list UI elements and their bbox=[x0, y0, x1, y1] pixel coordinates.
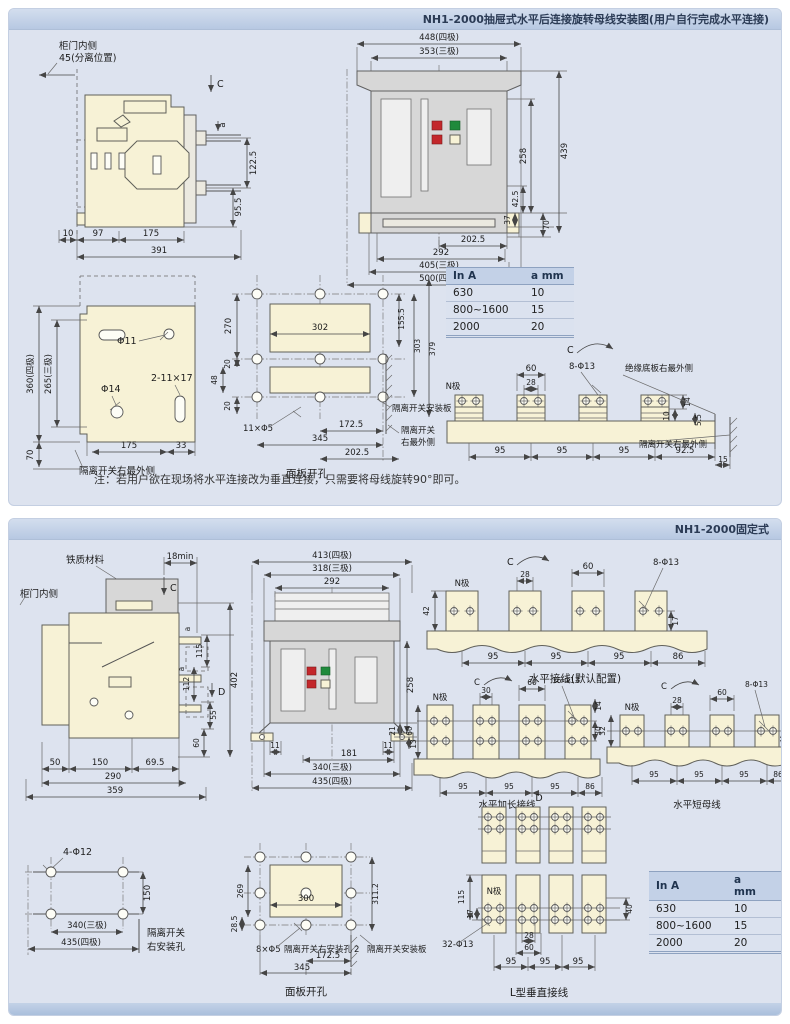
dim-label: 60 bbox=[526, 364, 537, 374]
panel1-titlebar: NH1-2000抽屉式水平后连接旋转母线安装图(用户自行完成水平连接) bbox=[9, 9, 781, 30]
hole-callout: Φ11 bbox=[117, 336, 137, 347]
top-flange bbox=[264, 621, 400, 641]
dim-label: 353(三极) bbox=[419, 46, 459, 57]
drawer-front-view: 448(四极) 353(三极) 258 439 42.5 37 70 202.5… bbox=[319, 31, 579, 289]
dim-label: 50 bbox=[50, 758, 61, 768]
table-row: 800~160015 bbox=[446, 302, 574, 319]
table-row: 800~16001517 bbox=[649, 918, 782, 935]
dim-label: 175 bbox=[121, 441, 137, 451]
dim-label: 340(三极) bbox=[67, 920, 107, 931]
drawer-side-view: 柜门内侧 45(分离位置) C a 122.5 95.5 10 bbox=[19, 35, 319, 267]
hole-callout: 4-Φ12 bbox=[63, 847, 92, 858]
neutral-pole-label: N极 bbox=[487, 886, 502, 897]
dim-label: 270 bbox=[224, 318, 234, 334]
dim-label: 269 bbox=[236, 884, 245, 899]
dim-label: 300 bbox=[298, 894, 314, 904]
indicator-red bbox=[432, 135, 442, 144]
hole-callout: 8-Φ13 bbox=[653, 558, 679, 568]
fixed-side-view: 铁质材料 柜门内侧 C 18min a a D 115 112 55 bbox=[14, 547, 244, 805]
dim-label: 32 bbox=[598, 726, 607, 736]
busbar-stacks bbox=[427, 705, 591, 759]
dim-label: 20 bbox=[223, 401, 232, 411]
upper-bars bbox=[478, 807, 611, 863]
busbar-l-vertical-view: D N极 115 17 32-Φ13 40 bbox=[434, 791, 674, 1016]
indicator-red bbox=[307, 667, 316, 675]
arc-chamber bbox=[275, 593, 389, 621]
label-door-inner: 柜门内侧 bbox=[20, 588, 58, 600]
table-row: 63010 bbox=[446, 285, 574, 302]
indicator-green bbox=[450, 121, 460, 130]
dim-label: 172.5 bbox=[339, 420, 363, 430]
dim-label: 42 bbox=[422, 606, 431, 616]
dim-label: 55 bbox=[209, 710, 218, 720]
dim-label: 435(四极) bbox=[312, 776, 352, 787]
dim-label: 86 bbox=[773, 770, 782, 779]
dim-label: 95 bbox=[458, 782, 468, 791]
dim-label: 292 bbox=[324, 577, 340, 587]
dim-label: 115 bbox=[457, 890, 466, 905]
dim-label: 33 bbox=[176, 441, 187, 451]
dim-label: 60 bbox=[524, 943, 534, 952]
indicator-cream bbox=[321, 680, 330, 688]
dim-label: 292 bbox=[433, 248, 449, 258]
dim-label: 42.5 bbox=[511, 190, 520, 207]
hole-callout: 8-Φ13 bbox=[745, 680, 768, 689]
dim-label: 28 bbox=[672, 696, 682, 705]
dim-label: a bbox=[218, 122, 228, 127]
dim-label: 311.2 bbox=[371, 883, 380, 905]
dim-label: 413(四极) bbox=[312, 550, 352, 561]
dim-label: 97 bbox=[93, 229, 104, 239]
rear-busbar-view: C N极 28 60 8-Φ13 14 10 5.5 95 95 95 bbox=[429, 329, 782, 471]
dim-label: 60 bbox=[583, 562, 594, 572]
table-row: 20002018.5 bbox=[649, 935, 782, 953]
indicator-cream bbox=[450, 135, 460, 144]
dim-label: 345 bbox=[312, 434, 328, 444]
dim-label: 112 bbox=[182, 677, 191, 692]
dim-label: 60 bbox=[527, 678, 537, 687]
panel-cutout-view: 270 20 48 20 302 155.5 303 379 11×Φ5 172… bbox=[207, 259, 452, 481]
dim-label: 20 bbox=[223, 359, 232, 369]
neutral-pole-label: N极 bbox=[433, 692, 448, 703]
table-cell: 630 bbox=[649, 901, 727, 918]
dim-label: 86 bbox=[585, 782, 595, 791]
rotation-c-label: C bbox=[474, 678, 480, 688]
current-spec-table-fixed: In A a mm b mm 6301017 800~16001517 2000… bbox=[649, 871, 782, 954]
section-c-label: C bbox=[170, 583, 177, 594]
dim-label: a bbox=[183, 627, 192, 632]
right-hole-label: 右安装孔 bbox=[147, 941, 186, 953]
dim-label: 37 bbox=[503, 215, 512, 225]
dim-label: 15 bbox=[718, 455, 728, 464]
dim-label: 318(三极) bbox=[312, 563, 352, 574]
dim-label: 70 bbox=[26, 450, 36, 461]
dim-label: 60 bbox=[405, 726, 414, 736]
indicator-red bbox=[307, 680, 316, 688]
dim-label: 48 bbox=[210, 375, 219, 385]
dim-label: 95 bbox=[551, 652, 562, 662]
label-separation: 45(分离位置) bbox=[59, 52, 117, 64]
dim-label: 2 bbox=[354, 945, 359, 955]
dim-label: 95 bbox=[694, 770, 704, 779]
dim-label: 18min bbox=[167, 552, 194, 562]
table-cell: 20 bbox=[727, 935, 775, 953]
dim-label: 10 bbox=[63, 229, 74, 239]
right-hole-label: 隔离开关 bbox=[147, 927, 186, 939]
dim-label: 150 bbox=[143, 885, 153, 901]
dim-label: 28 bbox=[524, 931, 534, 940]
dim-label: 17 bbox=[671, 616, 680, 626]
table-cell: 800~1600 bbox=[446, 302, 524, 319]
dim-label: 11 bbox=[383, 741, 393, 750]
dim-label: 258 bbox=[519, 148, 529, 164]
dim-label: 115 bbox=[195, 644, 204, 659]
dim-label: 122.5 bbox=[249, 151, 259, 175]
hole-callout: 8-Φ13 bbox=[569, 362, 595, 372]
rotation-c-label: C bbox=[567, 345, 574, 356]
drawing-caption: L型垂直接线 bbox=[510, 986, 569, 999]
indicator-green bbox=[321, 667, 330, 675]
dim-label: 10 bbox=[662, 411, 671, 421]
dim-label: 95 bbox=[495, 446, 506, 456]
table-row: 6301017 bbox=[649, 901, 782, 918]
dim-label: 60 bbox=[192, 738, 201, 748]
dim-label: 359 bbox=[107, 786, 123, 796]
dim-label: 28 bbox=[526, 378, 536, 387]
dim-label: 17 bbox=[466, 909, 475, 919]
drawing-caption: 面板开孔 bbox=[285, 985, 327, 998]
table-header: a mm bbox=[727, 872, 775, 901]
panel2-title: NH1-2000固定式 bbox=[675, 521, 769, 537]
outer-edge-label: 隔离开关右最外侧 bbox=[639, 439, 707, 450]
busbar-base bbox=[414, 759, 600, 778]
dim-label: 448(四极) bbox=[419, 32, 459, 43]
dim-label: 95 bbox=[540, 957, 551, 967]
dim-label: 40 bbox=[625, 904, 634, 914]
table-cell: 15 bbox=[727, 918, 775, 935]
dim-label: 302 bbox=[312, 323, 328, 333]
table-cell: 10 bbox=[727, 901, 775, 918]
dim-label: 21 bbox=[388, 726, 397, 736]
table-cell: 10 bbox=[524, 285, 574, 302]
dim-label: 175 bbox=[143, 229, 159, 239]
dim-label: 95 bbox=[550, 782, 560, 791]
dim-label: 95 bbox=[573, 957, 584, 967]
dim-label: 265(三极) bbox=[43, 354, 54, 394]
busbar-stacks bbox=[455, 395, 669, 421]
table-cell: 15 bbox=[524, 302, 574, 319]
label-door-inner: 柜门内侧 bbox=[59, 40, 97, 52]
dim-label: 95 bbox=[557, 446, 568, 456]
dim-label: 70 bbox=[542, 220, 551, 230]
panel-fixed-type: NH1-2000固定式 铁质材料 柜门内侧 C 18min a a D 115 bbox=[8, 518, 782, 1016]
dim-label: 202.5 bbox=[461, 235, 485, 245]
dim-label: 86 bbox=[673, 652, 684, 662]
dim-label: 60 bbox=[717, 688, 727, 697]
hole-callout: 32-Φ13 bbox=[442, 940, 473, 950]
dim-label: 69.5 bbox=[146, 758, 165, 768]
hole-callout: 11×Φ5 bbox=[243, 424, 273, 434]
dim-label: 303 bbox=[413, 339, 422, 354]
current-spec-table: In A a mm 63010 800~160015 200020 bbox=[446, 267, 574, 338]
panel1-title: NH1-2000抽屉式水平后连接旋转母线安装图(用户自行完成水平连接) bbox=[423, 11, 769, 27]
dim-label: 155.5 bbox=[397, 308, 406, 330]
table-header: In A bbox=[649, 872, 727, 901]
dim-label: 95 bbox=[504, 782, 514, 791]
neutral-pole-label: N极 bbox=[446, 381, 461, 392]
mounting-holes-view: 4-Φ12 150 340(三极) 435(四极) 隔离开关 右安装孔 bbox=[19, 837, 234, 977]
dim-label: 30 bbox=[481, 686, 491, 695]
note-text: 注：若用户欲在现场将水平连接改为垂直连接，只需要将母线旋转90°即可。 bbox=[94, 471, 466, 487]
terminal-stubs bbox=[196, 131, 241, 195]
dim-label: 5.5 bbox=[694, 414, 703, 426]
busbar-short-view: C N极 28 60 8-Φ13 32 b 95 95 95 86 水平短母线 bbox=[599, 669, 782, 811]
top-flange bbox=[357, 71, 521, 91]
dim-label: 439 bbox=[560, 143, 570, 159]
rotation-c-label: C bbox=[507, 557, 514, 568]
busbar-default-view: C N极 28 60 8-Φ13 42 17 95 95 95 86 水平接线(… bbox=[407, 549, 782, 687]
dim-label: 11 bbox=[270, 741, 280, 750]
dim-label: 95 bbox=[619, 446, 630, 456]
dim-label: 202.5 bbox=[345, 448, 369, 458]
hole-callout: 16-Φ13 bbox=[552, 676, 580, 685]
dim-label: 95 bbox=[649, 770, 659, 779]
dim-label: 95 bbox=[488, 652, 499, 662]
panel-drawer-type: NH1-2000抽屉式水平后连接旋转母线安装图(用户自行完成水平连接) 柜门内侧… bbox=[8, 8, 782, 506]
table-cell: 800~1600 bbox=[649, 918, 727, 935]
busbar-extended-view: C N极 30 60 16-Φ13 60 14 30 95 95 95 86 水… bbox=[402, 669, 607, 811]
dim-label: 95 bbox=[739, 770, 749, 779]
neutral-pole-label: N极 bbox=[625, 702, 640, 713]
slot-callout: 2-11×17 bbox=[151, 373, 193, 384]
dim-label: 181 bbox=[341, 749, 357, 759]
table-cell: 630 bbox=[446, 285, 524, 302]
section-d-label: D bbox=[535, 793, 542, 804]
panel2-titlebar: NH1-2000固定式 bbox=[9, 519, 781, 540]
busbar-stacks bbox=[446, 591, 667, 631]
dim-label: a bbox=[177, 667, 186, 672]
dim-label: 290 bbox=[105, 772, 121, 782]
table-header: a mm bbox=[524, 268, 574, 285]
mount-plate-label: 隔离开关安装板 bbox=[367, 944, 427, 955]
busbar-base bbox=[607, 747, 782, 766]
dim-label: 14 bbox=[683, 397, 692, 407]
rotation-c-label: C bbox=[661, 682, 667, 692]
panel-footer-bar bbox=[9, 1003, 781, 1015]
table-cell: 18.5 bbox=[775, 935, 782, 953]
section-c-label: C bbox=[217, 79, 224, 90]
hole-callout: Φ14 bbox=[101, 384, 121, 395]
dim-label: 95 bbox=[506, 957, 517, 967]
table-cell: 17 bbox=[775, 918, 782, 935]
cutout-rect-bottom bbox=[270, 367, 370, 393]
fixed-body bbox=[69, 613, 179, 738]
dim-label: 28 bbox=[520, 570, 530, 579]
dim-label: 28.5 bbox=[230, 915, 239, 932]
neutral-pole-label: N极 bbox=[455, 578, 470, 589]
dim-label: 360(四极) bbox=[25, 354, 36, 394]
drawing-caption: 水平短母线 bbox=[673, 799, 721, 811]
lower-bars bbox=[478, 875, 620, 933]
section-d-label: D bbox=[218, 687, 225, 698]
table-header: b mm bbox=[775, 872, 782, 901]
indicator-red bbox=[432, 121, 442, 130]
table-cell: 17 bbox=[775, 901, 782, 918]
busbar-base bbox=[427, 631, 707, 653]
fixed-front-view: 413(四极) 318(三极) 292 258 21 13 11 11 18 bbox=[237, 547, 427, 809]
dim-label: 345 bbox=[294, 963, 310, 973]
label-iron-material: 铁质材料 bbox=[66, 554, 105, 566]
dim-label: 95 bbox=[614, 652, 625, 662]
table-cell: 2000 bbox=[649, 935, 727, 953]
dim-label: 435(四极) bbox=[61, 937, 101, 948]
table-header: In A bbox=[446, 268, 524, 285]
dim-label: 340(三极) bbox=[312, 762, 352, 773]
dim-label: 172.5 bbox=[316, 951, 340, 961]
dim-label: 391 bbox=[151, 246, 167, 256]
dim-label: 95.5 bbox=[234, 198, 244, 217]
mounting-plate-view: Φ11 Φ14 2-11×17 360(四极) 265(三极) 70 175 3… bbox=[17, 264, 232, 479]
dim-label: 150 bbox=[92, 758, 108, 768]
insulation-edge-label: 绝缘底板右最外侧 bbox=[625, 363, 693, 374]
